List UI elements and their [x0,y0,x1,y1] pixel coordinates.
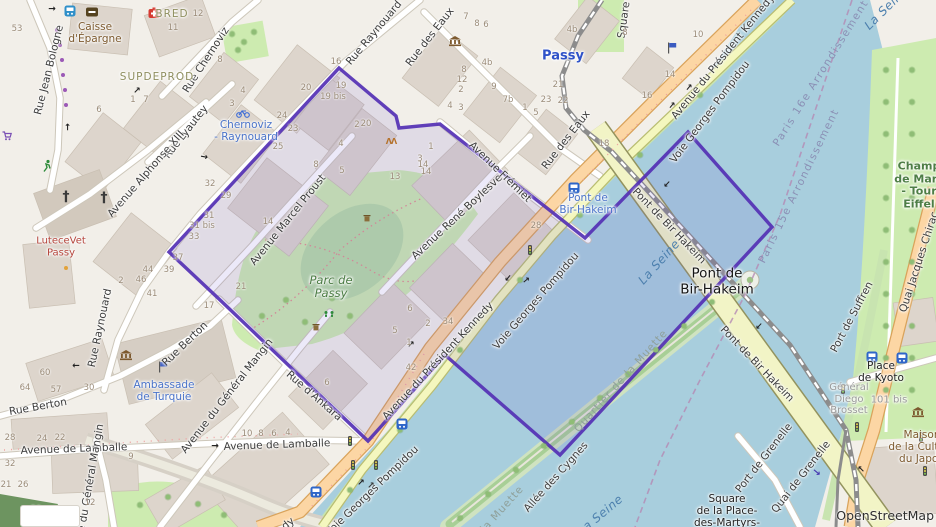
osm-attribution[interactable]: OpenStreetMap [836,508,934,523]
partial-label-box [20,505,80,527]
map-canvas[interactable]: ††ΛΛ→→→→→→→→→→→→→→→→→ Rue RaynouardRue R… [0,0,936,527]
base-map-svg [0,0,936,527]
